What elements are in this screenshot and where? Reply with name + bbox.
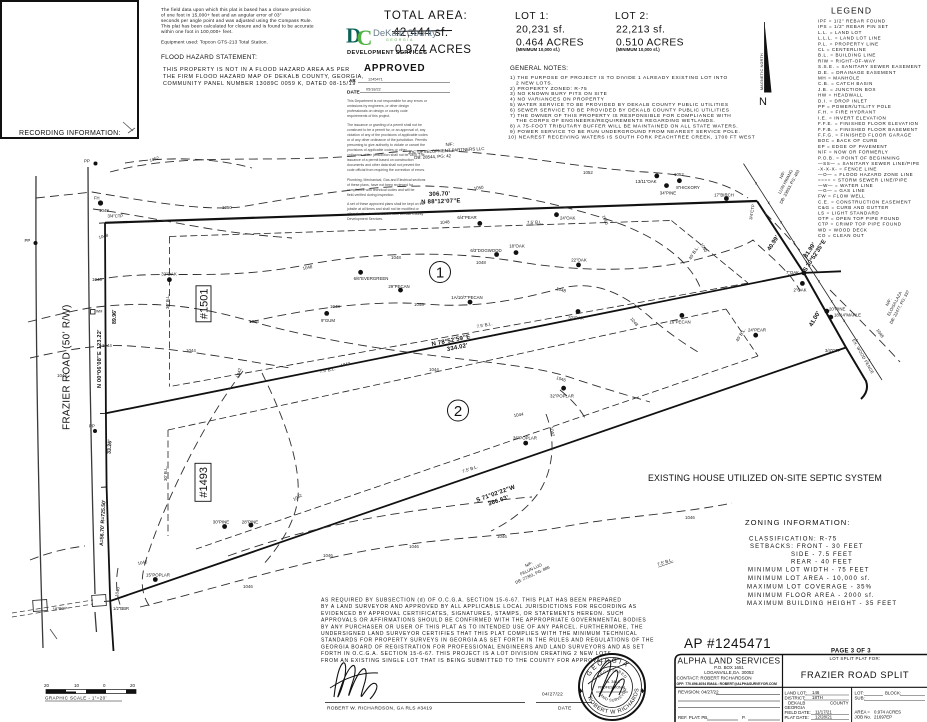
svg-text:28”PINE: 28”PINE — [242, 520, 259, 525]
svg-text:16”PECAN: 16”PECAN — [669, 320, 690, 325]
svg-text:C&G = CURB AND GUTTER: C&G = CURB AND GUTTER — [818, 205, 889, 210]
svg-text:REAR - 40 FEET: REAR - 40 FEET — [791, 560, 853, 566]
svg-text:(MINIMUM 10,000 sf.): (MINIMUM 10,000 sf.) — [516, 47, 560, 52]
svg-text:1048: 1048 — [391, 255, 401, 260]
svg-text:04/27/22: 04/27/22 — [542, 692, 563, 698]
svg-text:05/18/22: 05/18/22 — [366, 88, 381, 92]
svg-text:18”OAK: 18”OAK — [509, 244, 525, 249]
svg-text:REF. PLAT: PB.: REF. PLAT: PB. — [678, 715, 708, 720]
svg-text:-X-X-X- = FENCE LINE: -X-X-X- = FENCE LINE — [818, 166, 877, 171]
svg-text:COUNTY: COUNTY — [830, 701, 849, 706]
svg-text:S.S.E. = SANITARY SEWER EASEME: S.S.E. = SANITARY SEWER EASEMENT — [818, 64, 922, 69]
svg-text:AP #1245471: AP #1245471 — [684, 636, 771, 651]
svg-text:C.B. = CATCH BASIN: C.B. = CATCH BASIN — [818, 81, 873, 86]
svg-text:1046: 1046 — [685, 515, 695, 520]
svg-text:✱: ✱ — [640, 688, 645, 695]
svg-text:2 NEW LOTS.: 2 NEW LOTS. — [516, 80, 553, 86]
svg-text:PAGE 3 OF 3: PAGE 3 OF 3 — [831, 649, 871, 655]
svg-text:SUB:: SUB: — [855, 696, 865, 701]
svg-text:FRAZIER ROAD (50’ R/W): FRAZIER ROAD (50’ R/W) — [62, 304, 73, 430]
svg-text:ZONING INFORMATION:: ZONING INFORMATION: — [745, 518, 850, 527]
svg-text:Plumbing, Mechanical, Gas and: Plumbing, Mechanical, Gas and Electrical… — [347, 178, 426, 182]
svg-text:PP: PP — [89, 424, 95, 429]
svg-text:33.26’: 33.26’ — [107, 439, 114, 454]
svg-text:34”PINE: 34”PINE — [660, 191, 677, 196]
svg-text:1046: 1046 — [323, 553, 333, 558]
svg-text:WD = WOOD DECK: WD = WOOD DECK — [818, 227, 868, 232]
svg-text:ALPHA LAND SERVICES: ALPHA LAND SERVICES — [678, 656, 781, 666]
svg-text:JOB No.: JOB No. — [855, 715, 872, 720]
svg-text:field-verified during inspecti: field-verified during inspection. — [347, 193, 394, 197]
svg-text:seconds per angle point and wa: seconds per angle point and was adjusted… — [161, 18, 312, 23]
svg-text:BOC = BACK OF CURB: BOC = BACK OF CURB — [818, 138, 878, 143]
svg-text:29”PECAN: 29”PECAN — [388, 284, 409, 289]
svg-text:15”POPLAR: 15”POPLAR — [146, 572, 170, 577]
svg-text:LOGANVILLE,GA. 30052: LOGANVILLE,GA. 30052 — [704, 670, 754, 675]
svg-text:24”OAK: 24”OAK — [560, 216, 576, 221]
svg-text:IPS = 1/2" REBAR PIN SET: IPS = 1/2" REBAR PIN SET — [818, 24, 889, 29]
svg-text:1046: 1046 — [497, 534, 507, 539]
svg-text:This Department is not respons: This Department is not responsible for a… — [347, 99, 428, 103]
svg-text:issuance of a permit based: issuance of a permit based on constructi… — [347, 158, 414, 162]
svg-text:1052: 1052 — [583, 170, 593, 175]
svg-text:#1493: #1493 — [198, 467, 210, 498]
svg-text:1044: 1044 — [102, 343, 112, 348]
svg-text:9) POWER SERVICE TO BE RUN UND: 9) POWER SERVICE TO BE RUN UNDERGROUND F… — [510, 129, 740, 135]
svg-text:LOT 1:: LOT 1: — [515, 11, 549, 22]
svg-text:==== = STORM SEWER LINE/PIPE: ==== = STORM SEWER LINE/PIPE — [818, 177, 908, 182]
svg-text:GEORGIA: GEORGIA — [386, 38, 414, 42]
svg-text:ROBERT W. RICHARDSON, GA RLS #: ROBERT W. RICHARDSON, GA RLS #3419 — [327, 706, 432, 712]
svg-text:DATE: DATE — [558, 706, 572, 712]
svg-text:22”OAK: 22”OAK — [571, 258, 587, 263]
svg-text:FORTH IN O.C.G.A. SECTION 15-6: FORTH IN O.C.G.A. SECTION 15-6-67. THIS … — [321, 651, 612, 657]
svg-text:GEORGIA BOARD OF REGISTRATION: GEORGIA BOARD OF REGISTRATION FOR PROFES… — [321, 644, 645, 650]
svg-text:PLAT DATE:: PLAT DATE: — [785, 715, 809, 720]
svg-text:FH: FH — [94, 196, 100, 201]
svg-text:COMMUNITY PANEL NUMBER 13089C: COMMUNITY PANEL NUMBER 13089C 0059 K, DA… — [163, 81, 356, 87]
svg-text:1048: 1048 — [440, 219, 451, 225]
svg-text:WM: WM — [96, 310, 102, 314]
svg-text:GENERAL NOTES:: GENERAL NOTES: — [510, 65, 568, 72]
svg-text:—O— = FLOOD HAZARD ZONE LINE: —O— = FLOOD HAZARD ZONE LINE — [818, 172, 913, 177]
svg-text:—W— = WATER LINE: —W— = WATER LINE — [818, 183, 873, 188]
svg-text:20: 20 — [130, 683, 136, 688]
svg-text:THIS PROPERTY IS NOT IN A FLOO: THIS PROPERTY IS NOT IN A FLOOD HAZARD A… — [163, 67, 350, 73]
svg-text:36”POPLAR: 36”POPLAR — [513, 436, 537, 441]
svg-text:REVISION: 04/27/22: REVISION: 04/27/22 — [678, 690, 719, 695]
svg-text:MAXIMUM LOT COVERAGE - 35%: MAXIMUM LOT COVERAGE - 35% — [747, 584, 872, 590]
svg-text:F.F.B. = FINISHED FLOOR BASEME: F.F.B. = FINISHED FLOOR BASEMENT — [818, 127, 918, 132]
svg-text:17”BIRCH: 17”BIRCH — [714, 193, 734, 198]
svg-text:1052: 1052 — [674, 172, 684, 177]
svg-text:UNDERSIGNED LAND SURVEYOR CERT: UNDERSIGNED LAND SURVEYOR CERTIFIES THAT… — [321, 631, 638, 637]
svg-text:MAXIMUM BUILDING HEIGHT - 35 F: MAXIMUM BUILDING HEIGHT - 35 FEET — [747, 601, 897, 607]
svg-text:1046: 1046 — [92, 277, 102, 282]
svg-text:30’ B.L.: 30’ B.L. — [165, 294, 170, 309]
svg-text:L.L.L. = LAND LOT LINE: L.L.L. = LAND LOT LINE — [818, 36, 881, 41]
svg-text:IPF = 1/2" REBAR FOUND: IPF = 1/2" REBAR FOUND — [818, 19, 886, 24]
svg-text:(MINIMUM 10,000 sf.): (MINIMUM 10,000 sf.) — [616, 47, 660, 52]
svg-text:N 00°06’08”E 123.22’: N 00°06’08”E 123.22’ — [97, 329, 103, 388]
svg-text:FROM AN EXISTING SINGLE LOT TH: FROM AN EXISTING SINGLE LOT THAT IS BEIN… — [321, 658, 606, 664]
svg-text:F.F.G. = FINISHED FLOOR GARAGE: F.F.G. = FINISHED FLOOR GARAGE — [818, 133, 912, 138]
svg-text:EP = EDGE OF PAVEMENT: EP = EDGE OF PAVEMENT — [818, 144, 888, 149]
svg-text:2) PROPERTY ZONED: R-75: 2) PROPERTY ZONED: R-75 — [510, 86, 587, 92]
svg-text:STANDARDS FOR PROPERTY SURVEYS: STANDARDS FOR PROPERTY SURVEYS IN GEORGI… — [321, 638, 654, 644]
svg-text:32”OAK: 32”OAK — [161, 272, 177, 277]
svg-text:THE CORPS OF ENGINEERS/REQUIRE: THE CORPS OF ENGINEERS/REQUIREMENTS REGA… — [516, 118, 715, 124]
svg-text:N/F:: N/F: — [445, 142, 454, 147]
svg-text:1050: 1050 — [222, 205, 232, 210]
svg-text:MAGNETIC NORTH: MAGNETIC NORTH — [760, 53, 764, 90]
svg-text:presuming to give authority to: presuming to give authority to violate o… — [347, 143, 425, 147]
svg-text:FLOOD HAZARD STATEMENT:: FLOOD HAZARD STATEMENT: — [161, 54, 257, 61]
svg-text:requirements of this project.: requirements of this project. — [347, 114, 390, 118]
svg-text:The issuance or granting of a: The issuance or granting of a permit sha… — [347, 123, 422, 127]
svg-text:PP = POWER/UTILITY POLE: PP = POWER/UTILITY POLE — [818, 104, 892, 109]
svg-text:5) WATER SERVICE TO BE PROVIDE: 5) WATER SERVICE TO BE PROVIDED BY DEKAL… — [510, 102, 729, 108]
svg-text:F.H. = FIRE HYDRANT: F.H. = FIRE HYDRANT — [818, 110, 876, 115]
svg-text:1) THE PURPOSE OF PROJECT IS T: 1) THE PURPOSE OF PROJECT IS TO DIVIDE 1… — [510, 75, 728, 81]
svg-text:R/W = RIGHT-OF-WAY: R/W = RIGHT-OF-WAY — [818, 58, 876, 63]
svg-text:SETBACKS: FRONT - 30 FEET: SETBACKS: FRONT - 30 FEET — [750, 544, 864, 550]
svg-text:MINIMUM FLOOR AREA - 2000 sf.: MINIMUM FLOOR AREA - 2000 sf. — [748, 593, 875, 599]
svg-text:AS REQUIRED BY SUBSECTION (d): AS REQUIRED BY SUBSECTION (d) OF O.C.G.A… — [321, 598, 622, 604]
svg-text:MINIMUM LOT WIDTH - 75 FEET: MINIMUM LOT WIDTH - 75 FEET — [748, 568, 870, 574]
svg-text:FRAZIER ROAD SPLIT: FRAZIER ROAD SPLIT — [801, 670, 909, 680]
svg-text:7”OAK: 7”OAK — [786, 270, 799, 275]
svg-text:1245471: 1245471 — [368, 78, 383, 82]
svg-text:P.O.B. = POINT OF BEGINNING: P.O.B. = POINT OF BEGINNING — [818, 155, 900, 160]
svg-text:CLASSIFICATION: R-75: CLASSIFICATION: R-75 — [749, 537, 837, 543]
svg-text:20”PINE: 20”PINE — [829, 307, 846, 312]
svg-text:RECORDING INFORMATION:: RECORDING INFORMATION: — [19, 130, 121, 137]
svg-text:3/4”CTP: 3/4”CTP — [108, 214, 124, 219]
svg-text:1044: 1044 — [57, 373, 67, 378]
svg-text:P.: P. — [742, 715, 746, 720]
svg-text:1/2”RBR: 1/2”RBR — [113, 606, 129, 611]
svg-text:or of any other ordinance of t: or of any other ordinance of the jurisdi… — [347, 138, 427, 142]
svg-text:BLOCK:: BLOCK: — [885, 691, 901, 696]
svg-text:9”GUM: 9”GUM — [321, 318, 335, 323]
svg-text:compliance with technical c: compliance with technical codes and will… — [347, 188, 415, 192]
svg-text:TOTAL AREA:: TOTAL AREA: — [384, 10, 468, 22]
svg-text:1046: 1046 — [249, 319, 259, 324]
svg-text:professionals on design: professionals on design or county code — [347, 109, 408, 113]
svg-text:—SS— = SANITARY SEWER LINE/PIP: —SS— = SANITARY SEWER LINE/PIPE — [818, 161, 920, 166]
svg-text:within one foot in 100,000+ fe: within one foot in 100,000+ feet. — [161, 29, 233, 34]
svg-text:8”HICKORY: 8”HICKORY — [676, 185, 700, 190]
svg-text:1044: 1044 — [186, 348, 196, 353]
svg-text:10: 10 — [74, 683, 80, 688]
svg-text:P.L. = PROPERTY LINE: P.L. = PROPERTY LINE — [818, 41, 879, 46]
svg-text:BY A LAND SURVEYOR AND APPROVE: BY A LAND SURVEYOR AND APPROVED BY ALL A… — [321, 604, 637, 610]
svg-text:GRAPHIC SCALE - 1”=20’: GRAPHIC SCALE - 1”=20’ — [45, 696, 107, 701]
svg-text:MH = MANHOLE: MH = MANHOLE — [818, 76, 860, 81]
svg-text:CL = CENTERLINE: CL = CENTERLINE — [818, 47, 867, 52]
svg-text:F.F.E. = FINISHED FLOOR ELEVAT: F.F.E. = FINISHED FLOOR ELEVATION — [818, 121, 918, 126]
svg-text:FW = FLOW WELL: FW = FLOW WELL — [818, 194, 865, 199]
svg-text:CO = CLEAN OUT: CO = CLEAN OUT — [818, 233, 864, 238]
svg-text:I.E. = INVERT ELEVATION: I.E. = INVERT ELEVATION — [818, 115, 886, 120]
svg-text:20,231 sf.: 20,231 sf. — [516, 25, 565, 36]
svg-text:1048: 1048 — [476, 260, 486, 265]
svg-text:1046: 1046 — [243, 584, 253, 589]
svg-text:1048: 1048 — [99, 208, 109, 213]
svg-text:EXISTING HOUSE UTILIZED ON-SIT: EXISTING HOUSE UTILIZED ON-SITE SEPTIC S… — [648, 473, 882, 483]
svg-text:THE FIRM FLOOD HAZARD MAP OF D: THE FIRM FLOOD HAZARD MAP OF DEKALB COUN… — [163, 74, 364, 80]
svg-text:omissions by engineers,: omissions by engineers, or other design — [347, 104, 409, 108]
svg-text:1: 1 — [436, 265, 444, 282]
svg-text:—G— = GAS LINE: —G— = GAS LINE — [818, 188, 865, 193]
svg-text:7.5’ B.L.: 7.5’ B.L. — [527, 219, 543, 225]
svg-text:code official from requiring t: code official from requiring the correct… — [347, 168, 425, 172]
svg-text:DATE: DATE — [347, 90, 361, 96]
svg-text:2: 2 — [454, 403, 462, 420]
svg-text:6) SEWER SERVICE TO BE PROVIDE: 6) SEWER SERVICE TO BE PROVIDED BY DEKAL… — [510, 107, 730, 113]
svg-text:7) THE OWNER OF THIS PROPERTY: 7) THE OWNER OF THIS PROPERTY IS RESPONS… — [510, 113, 731, 119]
svg-text:of one foot in 15,000+ feet an: of one foot in 15,000+ feet and an angul… — [161, 13, 282, 18]
svg-text:PP: PP — [25, 238, 31, 243]
svg-text:6/3”DOGWOOD: 6/3”DOGWOOD — [470, 248, 501, 253]
svg-text:C.E. = CONSTRUCTION EASEMENT: C.E. = CONSTRUCTION EASEMENT — [818, 199, 912, 204]
svg-text:DEVELOPMENT SERVICES: DEVELOPMENT SERVICES — [347, 50, 427, 56]
svg-text:30’ B.L.: 30’ B.L. — [163, 466, 168, 481]
svg-text:N/F = NOW OR FORMERLY: N/F = NOW OR FORMERLY — [818, 150, 888, 155]
svg-text:This plat has been calculated: This plat has been calculated for closur… — [161, 24, 314, 29]
svg-text:20: 20 — [44, 683, 50, 688]
svg-text:jobsite at all times and shall: jobsite at all times and shall not be mo… — [346, 207, 420, 211]
svg-text:provisions of applicable: provisions of applicable codes or other — [347, 148, 408, 152]
svg-text:AR: AR — [349, 78, 356, 83]
svg-text:MINIMUM LOT AREA - 10,000 sf.: MINIMUM LOT AREA - 10,000 sf. — [748, 576, 871, 582]
svg-text:APPROVALS OR AFFIRMATIONS SHOU: APPROVALS OR AFFIRMATIONS SHOULD BE CONF… — [321, 618, 646, 624]
svg-text:18TH: 18TH — [812, 695, 823, 700]
svg-text:A set of these approved plans: A set of these approved plans shall be k… — [347, 202, 424, 206]
svg-text:LOT SPLIT PLAT FOR:: LOT SPLIT PLAT FOR: — [829, 656, 880, 661]
svg-text:HW = HEADWALL: HW = HEADWALL — [818, 93, 863, 98]
svg-text:BY ANY PURCHASER OR USER OF TH: BY ANY PURCHASER OR USER OF THIS PLAT AS… — [321, 624, 643, 630]
svg-text:30”PINE: 30”PINE — [213, 520, 230, 525]
svg-text:B.L. = BUILDING LINE: B.L. = BUILDING LINE — [818, 53, 876, 58]
svg-text:Development Services.: Development Services. — [347, 217, 383, 221]
svg-text:3/4”CTP: 3/4”CTP — [825, 348, 841, 353]
svg-text:C: C — [357, 25, 373, 50]
svg-text:32”POPLAR: 32”POPLAR — [550, 394, 574, 399]
svg-text:documents and other data shall: documents and other data shall not preve… — [347, 163, 420, 167]
svg-text:1048: 1048 — [330, 304, 340, 309]
svg-text:The field data upon which this: The field data upon which this plat is b… — [161, 7, 311, 12]
svg-text:18”RCP: 18”RCP — [53, 605, 68, 611]
svg-text:APPROVED: APPROVED — [364, 63, 425, 74]
svg-text:violation of any of the provis: violation of any of the provisions of ap… — [347, 133, 428, 137]
svg-text:13/11”OAK: 13/11”OAK — [635, 179, 656, 184]
svg-text:SIDE - 7.5 FEET: SIDE - 7.5 FEET — [791, 552, 853, 558]
svg-text:1048: 1048 — [414, 302, 424, 307]
svg-text:OFF: 770.696.4054 EMAIL: ROBER: OFF: 770.696.4054 EMAIL: ROBERT@ALPHASUR… — [677, 682, 777, 686]
svg-text:1A/10/7”PECAN: 1A/10/7”PECAN — [451, 295, 482, 300]
svg-text:CTP = CRIMP TOP PIPE FOUND: CTP = CRIMP TOP PIPE FOUND — [818, 222, 902, 227]
svg-text:CONTACT: ROBERT RICHARDSON: CONTACT: ROBERT RICHARDSON — [677, 676, 752, 681]
svg-text:Equipment used: Topcon GTS-213: Equipment used: Topcon GTS-213 Total Sta… — [161, 40, 268, 45]
svg-text:10) NEAREST RECEIVING WATERS I: 10) NEAREST RECEIVING WATERS IS SOUTH FO… — [508, 134, 755, 140]
svg-text:12/28/21: 12/28/21 — [815, 715, 833, 720]
svg-text:D.E. = DRAINAGE EASEMENT: D.E. = DRAINAGE EASEMENT — [818, 70, 896, 75]
svg-text:3) NO KNOWN BURY PITS ON SITE: 3) NO KNOWN BURY PITS ON SITE — [510, 91, 608, 97]
svg-text:6/4”PEAR: 6/4”PEAR — [457, 215, 476, 220]
svg-text:8) A 75-FOOT TRIBUTARY BUFFER: 8) A 75-FOOT TRIBUTARY BUFFER WILL BE MA… — [510, 124, 738, 130]
svg-text:1044: 1044 — [429, 367, 439, 372]
svg-text:D.I. = DROP INLET: D.I. = DROP INLET — [818, 98, 868, 103]
svg-text:6/6”EVERGREEN: 6/6”EVERGREEN — [354, 276, 389, 281]
svg-text:#1501: #1501 — [199, 289, 211, 320]
svg-text:EVIDENCED BY APPROVAL CERTIFIC: EVIDENCED BY APPROVAL CERTIFICATES, SIGN… — [321, 611, 624, 617]
svg-text:306.70’: 306.70’ — [429, 191, 451, 198]
svg-text:J.B. = JUNCTION BOX: J.B. = JUNCTION BOX — [818, 87, 876, 92]
svg-text:L.L. = LAND LOT: L.L. = LAND LOT — [818, 30, 862, 35]
svg-text:LEGEND: LEGEND — [831, 6, 872, 16]
svg-text:37”OAK: 37”OAK — [568, 316, 584, 321]
svg-text:N: N — [759, 96, 767, 108]
svg-text:LS = LIGHT STANDARD: LS = LIGHT STANDARD — [818, 211, 879, 216]
svg-text:22,213 sf.: 22,213 sf. — [616, 25, 665, 36]
svg-text:PP: PP — [84, 159, 90, 164]
svg-text:4) NO VARIANCES ON PROPERTY: 4) NO VARIANCES ON PROPERTY — [510, 97, 605, 103]
svg-text:18/14”MAPLE: 18/14”MAPLE — [834, 313, 861, 318]
svg-text:21697EP: 21697EP — [874, 715, 892, 720]
svg-text:24”PEAR: 24”PEAR — [748, 328, 766, 333]
svg-text:89.96’: 89.96’ — [112, 309, 118, 324]
svg-text:construed to be a permit for,: construed to be a permit for, or an appr… — [347, 128, 426, 132]
svg-text:LOT 2:: LOT 2: — [615, 11, 649, 22]
svg-text:✱: ✱ — [578, 688, 583, 695]
svg-text:1046: 1046 — [409, 544, 419, 549]
svg-text:OTP = OPEN TOP PIPE FOUND: OTP = OPEN TOP PIPE FOUND — [818, 216, 900, 221]
svg-text:2”OAK: 2”OAK — [793, 288, 806, 293]
